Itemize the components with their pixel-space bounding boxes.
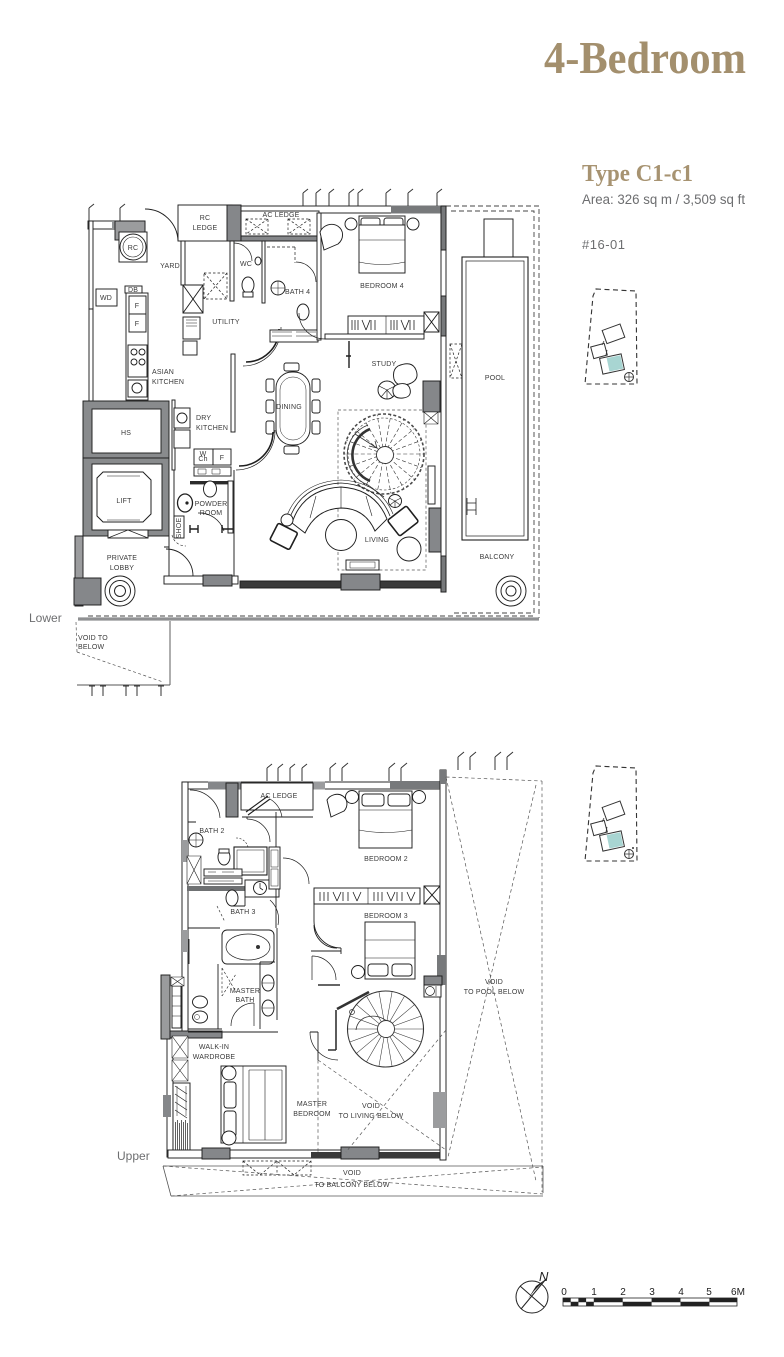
svg-text:KITCHEN: KITCHEN — [196, 425, 228, 432]
svg-text:#16-01: #16-01 — [582, 237, 625, 252]
svg-text:Type C1-c1: Type C1-c1 — [582, 161, 693, 187]
svg-text:AC LEDGE: AC LEDGE — [261, 793, 298, 800]
svg-text:F: F — [135, 303, 139, 310]
svg-text:POOL: POOL — [485, 375, 505, 382]
svg-text:RC: RC — [200, 215, 211, 222]
svg-text:DB: DB — [128, 287, 138, 294]
svg-text:Ch: Ch — [198, 456, 207, 463]
svg-text:KITCHEN: KITCHEN — [152, 379, 184, 386]
svg-text:WD: WD — [100, 295, 112, 302]
svg-text:4: 4 — [678, 1287, 684, 1298]
svg-text:DRY: DRY — [196, 415, 211, 422]
svg-text:6M: 6M — [731, 1287, 745, 1298]
svg-text:LIVING: LIVING — [365, 537, 389, 544]
svg-text:F: F — [220, 455, 224, 462]
svg-text:BEDROOM 4: BEDROOM 4 — [360, 283, 404, 290]
svg-text:LIFT: LIFT — [116, 498, 132, 505]
svg-text:POWDER: POWDER — [195, 501, 228, 508]
svg-text:RC: RC — [128, 245, 139, 252]
svg-text:BATH 2: BATH 2 — [199, 828, 224, 835]
svg-text:LEDGE: LEDGE — [193, 225, 218, 232]
svg-text:BATH 4: BATH 4 — [285, 289, 310, 296]
svg-text:WC: WC — [240, 261, 252, 268]
svg-text:YARD: YARD — [160, 263, 180, 270]
svg-text:BEDROOM 2: BEDROOM 2 — [364, 856, 408, 863]
svg-text:BATH 3: BATH 3 — [230, 909, 255, 916]
svg-text:AC LEDGE: AC LEDGE — [263, 212, 300, 219]
svg-text:ASIAN: ASIAN — [152, 369, 174, 376]
svg-text:TO POOL BELOW: TO POOL BELOW — [464, 989, 525, 996]
svg-text:WARDROBE: WARDROBE — [193, 1054, 236, 1061]
svg-text:STUDY: STUDY — [372, 361, 397, 368]
svg-text:SHOE: SHOE — [176, 518, 183, 539]
svg-text:1: 1 — [591, 1287, 597, 1298]
svg-text:MASTER: MASTER — [297, 1101, 327, 1108]
svg-text:TO BALCONY BELOW: TO BALCONY BELOW — [314, 1182, 389, 1189]
svg-text:VOID TO: VOID TO — [78, 635, 108, 642]
svg-text:DINING: DINING — [276, 404, 302, 411]
svg-text:2: 2 — [620, 1287, 626, 1298]
svg-text:VOID: VOID — [485, 979, 503, 986]
svg-text:BEDROOM 3: BEDROOM 3 — [364, 913, 408, 920]
svg-text:UTILITY: UTILITY — [212, 319, 240, 326]
svg-text:WALK-IN: WALK-IN — [199, 1044, 229, 1051]
svg-text:Lower: Lower — [29, 611, 62, 625]
svg-text:5: 5 — [706, 1287, 712, 1298]
svg-text:N: N — [539, 1269, 549, 1284]
svg-text:3: 3 — [649, 1287, 655, 1298]
svg-text:BEDROOM: BEDROOM — [293, 1111, 331, 1118]
svg-text:PRIVATE: PRIVATE — [107, 555, 137, 562]
svg-text:TO LIVING BELOW: TO LIVING BELOW — [339, 1113, 404, 1120]
svg-text:F: F — [135, 321, 139, 328]
svg-text:Area: 326 sq m / 3,509 sq ft: Area: 326 sq m / 3,509 sq ft — [582, 192, 745, 207]
svg-text:LOBBY: LOBBY — [110, 565, 134, 572]
svg-text:0: 0 — [561, 1287, 567, 1298]
svg-text:HS: HS — [121, 430, 131, 437]
svg-text:BELOW: BELOW — [78, 644, 104, 651]
svg-text:4-Bedroom: 4-Bedroom — [544, 32, 746, 83]
svg-text:Upper: Upper — [117, 1149, 150, 1163]
svg-text:BALCONY: BALCONY — [480, 554, 515, 561]
svg-text:VOID: VOID — [343, 1170, 361, 1177]
svg-text:VOID: VOID — [362, 1103, 380, 1110]
